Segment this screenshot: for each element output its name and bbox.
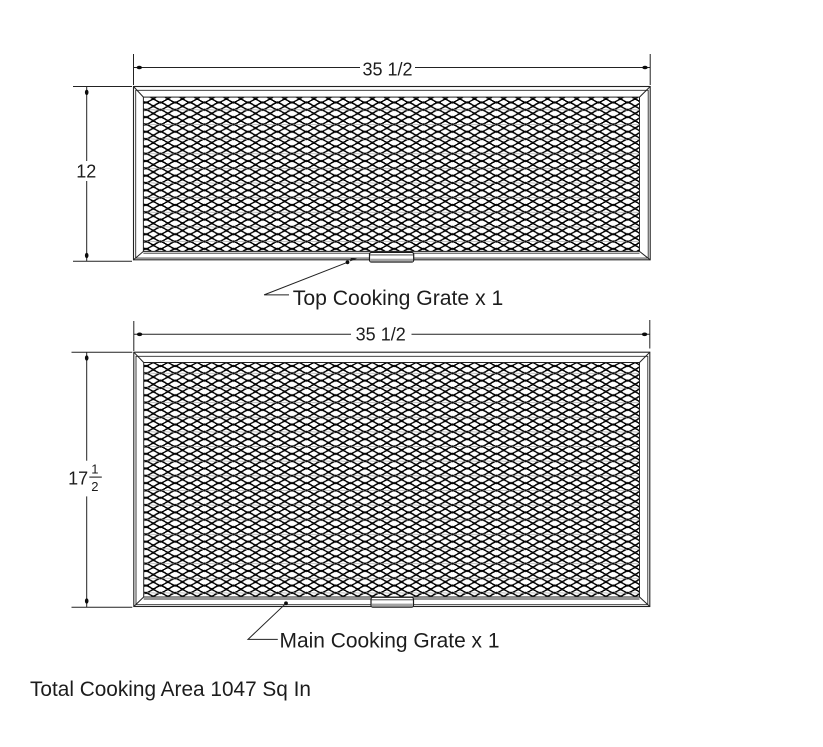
svg-text:35 1/2: 35 1/2 <box>356 324 406 344</box>
svg-text:Top Cooking Grate x 1: Top Cooking Grate x 1 <box>293 287 504 310</box>
svg-text:12: 12 <box>76 161 96 181</box>
svg-text:Main Cooking Grate x 1: Main Cooking Grate x 1 <box>280 629 500 652</box>
svg-text:2: 2 <box>91 479 98 494</box>
svg-text:17: 17 <box>68 468 88 488</box>
svg-text:35 1/2: 35 1/2 <box>362 60 412 80</box>
svg-text:Total Cooking Area 1047 Sq In: Total Cooking Area 1047 Sq In <box>30 677 311 701</box>
svg-text:1: 1 <box>91 462 98 477</box>
